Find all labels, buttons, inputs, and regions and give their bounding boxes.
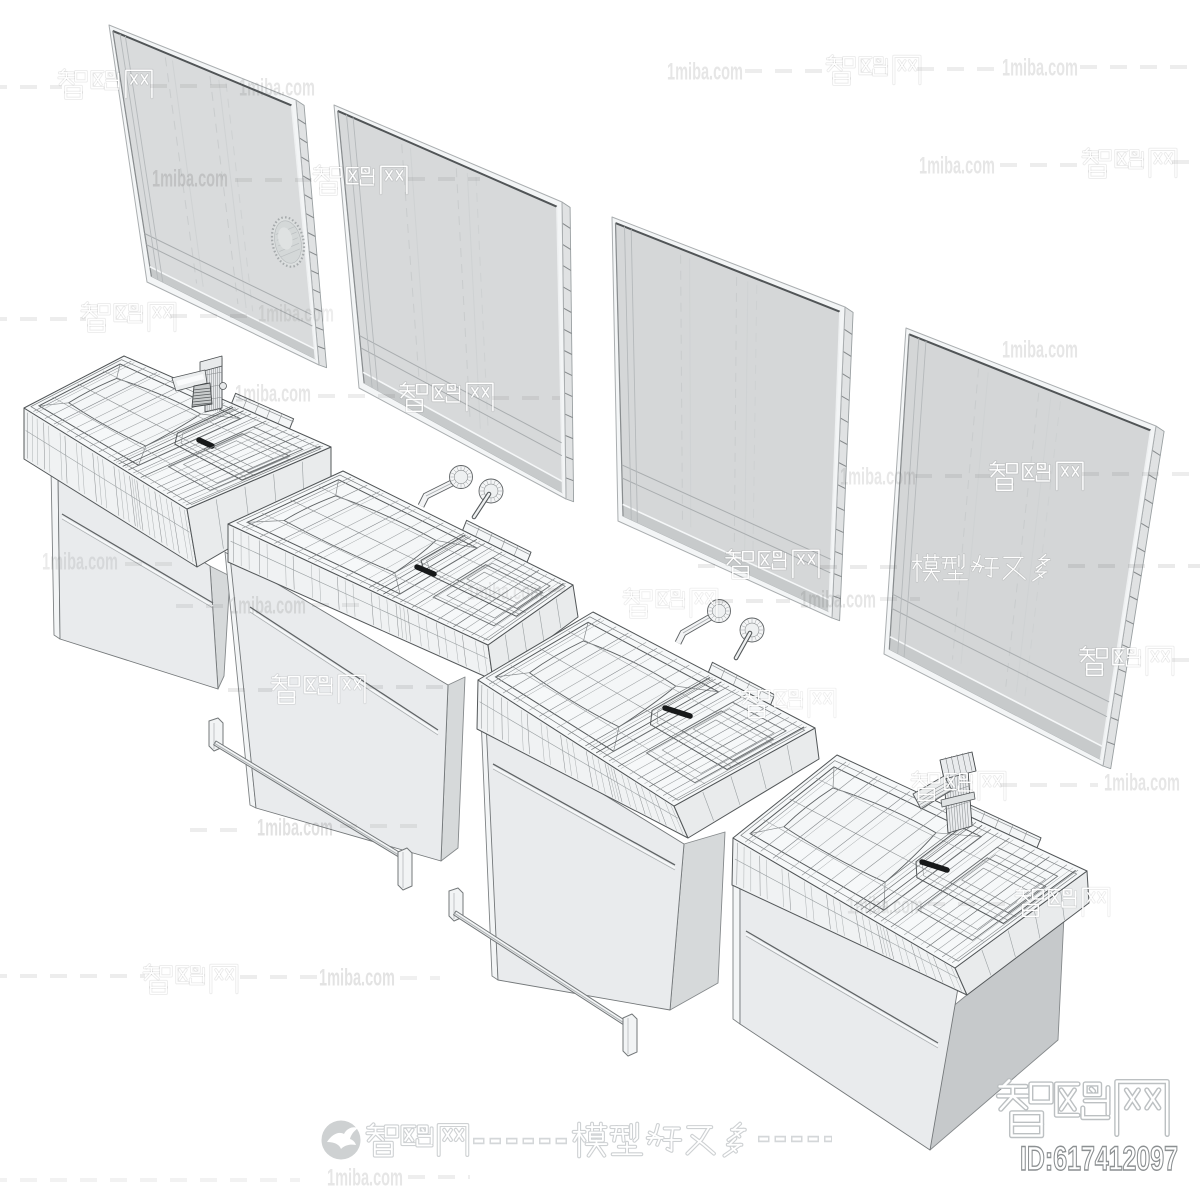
svg-text:1miba.com: 1miba.com xyxy=(467,579,543,606)
svg-text:1miba.com: 1miba.com xyxy=(235,381,311,408)
svg-text:1miba.com: 1miba.com xyxy=(327,1165,403,1192)
svg-text:1miba.com: 1miba.com xyxy=(230,593,306,620)
svg-text:1miba.com: 1miba.com xyxy=(319,965,395,992)
svg-text:1miba.com: 1miba.com xyxy=(800,587,876,614)
svg-text:1miba.com: 1miba.com xyxy=(919,153,995,180)
svg-text:1miba.com: 1miba.com xyxy=(1104,770,1180,797)
svg-text:1miba.com: 1miba.com xyxy=(258,301,334,328)
svg-text:1miba.com: 1miba.com xyxy=(42,549,118,576)
svg-text:1miba.com: 1miba.com xyxy=(1002,55,1078,82)
svg-text:1miba.com: 1miba.com xyxy=(847,893,923,920)
svg-text:1miba.com: 1miba.com xyxy=(1002,337,1078,364)
svg-text:1miba.com: 1miba.com xyxy=(840,464,916,491)
svg-text:1miba.com: 1miba.com xyxy=(239,75,315,102)
svg-text:ID:617412097: ID:617412097 xyxy=(1020,1140,1178,1178)
svg-text:1miba.com: 1miba.com xyxy=(667,59,743,86)
svg-text:1miba.com: 1miba.com xyxy=(152,166,228,193)
svg-text:1miba.com: 1miba.com xyxy=(257,815,333,842)
